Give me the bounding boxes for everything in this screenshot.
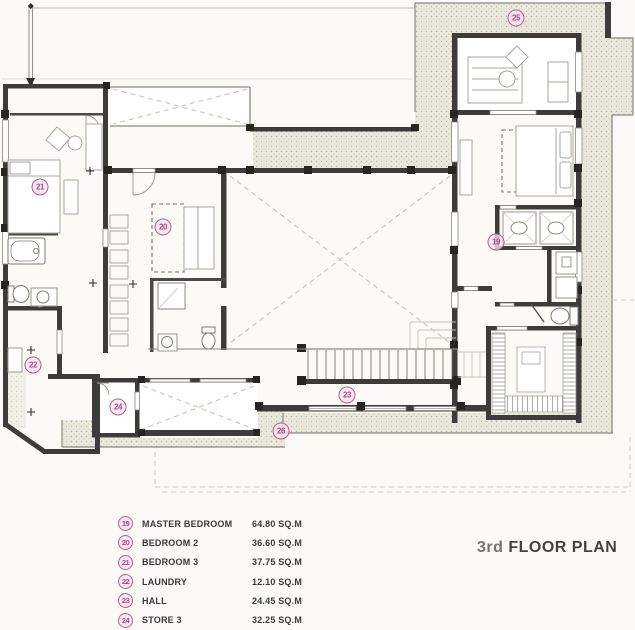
- plan-title-prefix: 3rd: [477, 539, 503, 556]
- room-number-badge: 22: [118, 574, 133, 589]
- legend-row: 21 BEDROOM 3 37.75 SQ.M: [118, 553, 302, 572]
- legend-row: 24 STORE 3 32.25 SQ.M: [118, 610, 302, 629]
- room-marker-19: 19: [488, 234, 505, 251]
- walkin-closet-shelving: [492, 333, 576, 413]
- room-label: MASTER BEDROOM: [142, 519, 252, 529]
- floor-plan-drawing: [0, 0, 635, 505]
- room-number-badge: 24: [118, 613, 133, 628]
- corridor-shelves: [110, 215, 128, 346]
- room-legend: 19 MASTER BEDROOM 64.80 SQ.M 20 BEDROOM …: [118, 514, 302, 630]
- room-marker-20: 20: [155, 219, 172, 236]
- staircase: [148, 322, 486, 379]
- furniture: [8, 46, 577, 372]
- room-label: STORE 3: [142, 615, 252, 625]
- room-area: 37.75 SQ.M: [252, 557, 302, 567]
- room-marker-26: 26: [273, 423, 290, 440]
- room-number-badge: 21: [118, 555, 133, 570]
- room-number-badge: 19: [118, 516, 133, 531]
- room-label: HALL: [142, 596, 252, 606]
- room-area: 36.60 SQ.M: [252, 538, 302, 548]
- room-marker-22: 22: [25, 357, 42, 374]
- dimension-lines: [2, 3, 414, 87]
- room-marker-21: 21: [32, 179, 49, 196]
- room-area: 12.10 SQ.M: [252, 577, 302, 587]
- room-area: 32.25 SQ.M: [252, 615, 302, 625]
- legend-row: 19 MASTER BEDROOM 64.80 SQ.M: [118, 514, 302, 533]
- floor-plan-page: 19 20 21 22 23 24 25 26 19 MASTER BEDROO…: [0, 0, 635, 630]
- room-number-badge: 20: [118, 535, 133, 550]
- legend-row: 23 HALL 24.45 SQ.M: [118, 591, 302, 610]
- room-area: 64.80 SQ.M: [252, 519, 302, 529]
- room-marker-23: 23: [339, 387, 356, 404]
- room-area: 24.45 SQ.M: [252, 596, 302, 606]
- room-marker-24: 24: [110, 399, 127, 416]
- room-label: BEDROOM 2: [142, 538, 252, 548]
- plan-title: 3rd FLOOR PLAN: [477, 539, 617, 557]
- room-marker-25: 25: [508, 10, 525, 27]
- plan-title-main: FLOOR PLAN: [508, 539, 617, 556]
- legend-row: 22 LAUNDRY 12.10 SQ.M: [118, 572, 302, 591]
- room-label: LAUNDRY: [142, 577, 252, 587]
- laundry-diagonal-wall: [5, 424, 45, 452]
- room-label: BEDROOM 3: [142, 557, 252, 567]
- legend-row: 20 BEDROOM 2 36.60 SQ.M: [118, 533, 302, 552]
- room-number-badge: 23: [118, 593, 133, 608]
